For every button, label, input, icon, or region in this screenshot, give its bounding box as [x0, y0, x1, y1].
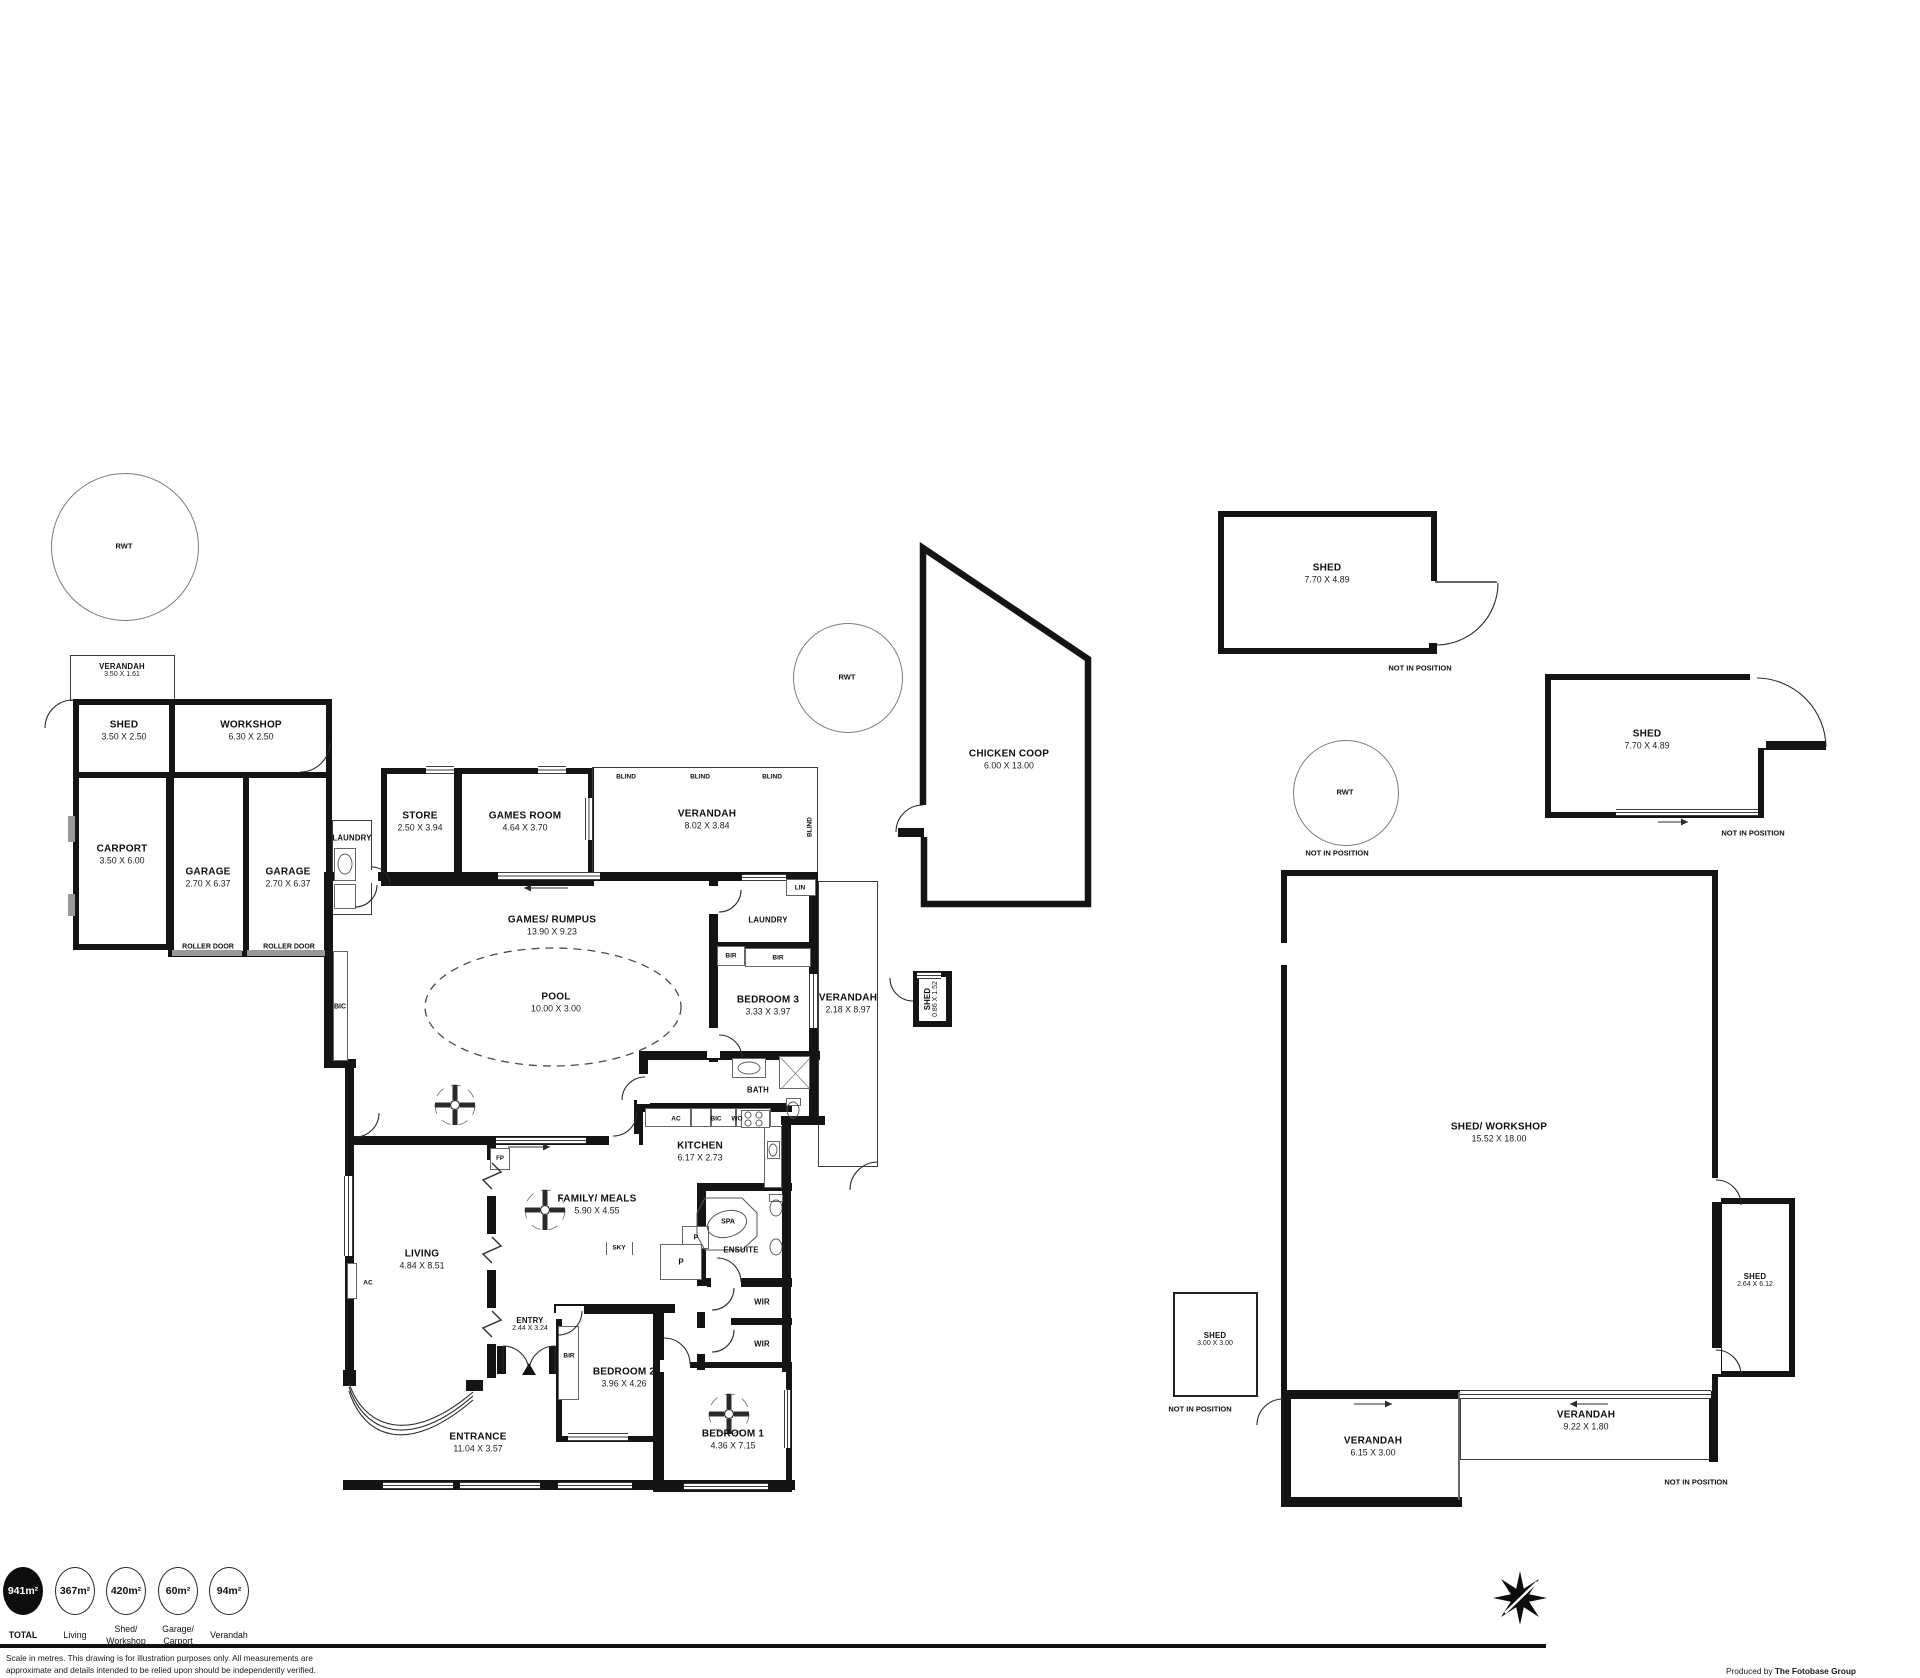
- workshop-name: WORKSHOP: [220, 720, 282, 732]
- wall-segment: [898, 828, 924, 837]
- arrow-head-icon: [1385, 1401, 1392, 1408]
- shed-small-name: SHED: [923, 981, 932, 1017]
- verandah-s2-label: VERANDAH9.22 X 1.80: [1557, 1410, 1615, 1433]
- shed-east-label: SHED2.64 X 6.12: [1737, 1272, 1773, 1290]
- games-rumpus-name: GAMES/ RUMPUS: [508, 915, 596, 927]
- wir-1-label: WIR: [754, 1297, 770, 1306]
- pool-dimensions: 10.00 X 3.00: [531, 1004, 581, 1015]
- legend-area-living: 367m²: [55, 1567, 95, 1615]
- annotation-lin: LIN: [795, 885, 805, 892]
- living-name: LIVING: [400, 1249, 445, 1261]
- fixture: [786, 1098, 801, 1106]
- garage-2-outline: [243, 772, 332, 957]
- annotation-blind: BLIND: [616, 774, 636, 781]
- wall-opening: [556, 1306, 584, 1319]
- verandah-north-label: VERANDAH8.02 X 3.84: [678, 809, 736, 832]
- annotation-wo: WO: [731, 1116, 742, 1123]
- entry-marker-icon: [522, 1363, 536, 1375]
- games-rumpus-dimensions: 13.90 X 9.23: [508, 927, 596, 938]
- legend-area-garage: 60m²: [158, 1567, 198, 1615]
- annotation-roller-door: ROLLER DOOR: [263, 944, 315, 951]
- fixture: [741, 1110, 770, 1128]
- bedroom-2-label: BEDROOM 23.96 X 4.26: [593, 1367, 655, 1390]
- annotation-not-in-position: NOT IN POSITION: [1664, 1478, 1727, 1487]
- fotobase-logo-slash: [1505, 1582, 1537, 1613]
- wall-segment: [1281, 1390, 1465, 1399]
- footer-produced-by: Produced by The Fotobase Group: [1540, 1666, 1856, 1676]
- fixture: [334, 848, 356, 881]
- verandah-s1-label: VERANDAH6.15 X 3.00: [1344, 1436, 1402, 1459]
- wall-opening: [711, 1274, 741, 1287]
- shed-nw-dimensions: 3.50 X 2.50: [102, 732, 147, 743]
- window: [568, 1433, 628, 1441]
- verandah-s1-name: VERANDAH: [1344, 1436, 1402, 1448]
- entry-label: ENTRY2.44 X 3.24: [512, 1316, 548, 1334]
- verandah-nw-dimensions: 3.50 X 1.61: [99, 671, 145, 679]
- annotation-bir: BIR: [563, 1353, 574, 1360]
- door-swing-arc: [503, 1346, 529, 1372]
- door-swing-arc: [1757, 678, 1826, 747]
- roller-door-strip: [68, 894, 75, 916]
- bedroom-2-name: BEDROOM 2: [593, 1367, 655, 1379]
- shed-small-label: SHED0.86 X 1.52: [923, 981, 941, 1017]
- footer-disclaimer: Scale in metres. This drawing is for ill…: [6, 1652, 316, 1677]
- wall-opening: [483, 1308, 501, 1344]
- verandah-nw-label: VERANDAH3.50 X 1.61: [99, 662, 145, 680]
- legend-label: Garage/: [162, 1624, 194, 1634]
- wall-opening: [1424, 581, 1437, 643]
- shed-nw-label: SHED3.50 X 2.50: [102, 720, 147, 743]
- legend-label: Verandah: [210, 1630, 248, 1640]
- rainwater-tank-label: RWT: [1337, 788, 1354, 797]
- fixture: [347, 1263, 357, 1299]
- wall-segment: [466, 1380, 483, 1391]
- wall-segment: [1760, 741, 1826, 750]
- window: [558, 1482, 632, 1489]
- annotation-not-in-position: NOT IN POSITION: [1721, 829, 1784, 838]
- annotation-bic: BIC: [710, 1116, 721, 1123]
- annotation-spa: SPA: [721, 1219, 735, 1226]
- annotation-bir: BIR: [772, 955, 783, 962]
- garage-1-dimensions: 2.70 X 6.37: [185, 879, 230, 890]
- pool-label: POOL10.00 X 3.00: [531, 992, 581, 1015]
- wall-segment: [1281, 1392, 1291, 1504]
- annotation-roller-door: ROLLER DOOR: [182, 944, 234, 951]
- door-swing-arc: [712, 1288, 734, 1310]
- bedroom-1-label: BEDROOM 14.36 X 7.15: [702, 1429, 764, 1452]
- carport-label: CARPORT3.50 X 6.00: [97, 844, 148, 867]
- hairline: [632, 1242, 633, 1255]
- entry-name: ENTRY: [512, 1316, 548, 1325]
- entrance-name: ENTRANCE: [449, 1432, 506, 1444]
- kitchen-name: KITCHEN: [677, 1141, 723, 1153]
- living-label: LIVING4.84 X 8.51: [400, 1249, 445, 1272]
- door-swing-arc: [712, 1330, 734, 1352]
- annotation-not-in-position: NOT IN POSITION: [1305, 849, 1368, 858]
- verandah-north-dimensions: 8.02 X 3.84: [678, 821, 736, 832]
- shed-workshop-dimensions: 15.52 X 18.00: [1451, 1134, 1547, 1145]
- verandah-east-label: VERANDAH2.18 X 8.97: [819, 993, 877, 1016]
- entrance-label: ENTRANCE11.04 X 3.57: [449, 1432, 506, 1455]
- shed-small-dimensions: 0.86 X 1.52: [932, 981, 940, 1017]
- workshop-label: WORKSHOP6.30 X 2.50: [220, 720, 282, 743]
- arrow-head-icon: [1681, 819, 1688, 826]
- wall-opening: [483, 1234, 501, 1270]
- wir-2-label: WIR: [754, 1339, 770, 1348]
- kitchen-label: KITCHEN6.17 X 2.73: [677, 1141, 723, 1164]
- shed-ne-1-label: SHED7.70 X 4.89: [1305, 563, 1350, 586]
- shed-sw-dimensions: 3.00 X 3.00: [1197, 1340, 1233, 1348]
- roller-door-strip: [68, 816, 75, 842]
- footer-line-2: approximate and details intended to be r…: [6, 1664, 316, 1676]
- shed-ne-1-dimensions: 7.70 X 4.89: [1305, 575, 1350, 586]
- annotation-blind: BLIND: [807, 817, 814, 837]
- fixture: [767, 1141, 780, 1159]
- family-meals-label: FAMILY/ MEALS5.90 X 4.55: [558, 1194, 637, 1217]
- fixture: [334, 884, 356, 909]
- window: [344, 1176, 353, 1256]
- window: [538, 766, 566, 774]
- chicken-coop-label: CHICKEN COOP6.00 X 13.00: [969, 749, 1049, 772]
- wall-opening: [695, 1328, 707, 1354]
- carport-name: CARPORT: [97, 844, 148, 856]
- window: [498, 872, 600, 880]
- games-room-dimensions: 4.64 X 3.70: [489, 823, 562, 834]
- wall-opening: [707, 886, 720, 914]
- carport-dimensions: 3.50 X 6.00: [97, 856, 148, 867]
- door-swing-arc: [1257, 1399, 1283, 1425]
- wall-opening: [1708, 1348, 1721, 1374]
- wall-segment: [782, 1116, 791, 1372]
- annotation-fp: FP: [496, 1156, 504, 1162]
- legend-label: Shed/: [115, 1624, 138, 1634]
- wall-opening: [1750, 670, 1766, 748]
- annotation-not-in-position: NOT IN POSITION: [1388, 664, 1451, 673]
- wall-opening: [1708, 1178, 1721, 1202]
- wall-opening: [660, 1360, 690, 1372]
- bedroom-3-label: BEDROOM 33.33 X 3.97: [737, 995, 799, 1018]
- ceiling-fan-icon: [435, 1085, 475, 1125]
- verandah-s1-dimensions: 6.15 X 3.00: [1344, 1448, 1402, 1459]
- games-rumpus-label: GAMES/ RUMPUS13.90 X 9.23: [508, 915, 596, 938]
- wall-opening: [637, 1074, 650, 1104]
- wall-segment: [343, 1370, 356, 1386]
- legend-label: Living: [64, 1630, 87, 1640]
- window: [784, 1390, 791, 1448]
- chicken-coop-name: CHICKEN COOP: [969, 749, 1049, 761]
- fixture: [558, 1326, 579, 1400]
- garage-2-name: GARAGE: [265, 867, 310, 879]
- laundry-main-name: LAUNDRY: [748, 915, 787, 924]
- door-swing-arc: [355, 1113, 379, 1137]
- store-name: STORE: [398, 811, 443, 823]
- hairline: [1435, 581, 1497, 583]
- window: [684, 1483, 768, 1490]
- door-swing-arc: [1437, 583, 1498, 645]
- annotation-blind: BLIND: [690, 774, 710, 781]
- annotation-p: P: [694, 1235, 699, 1242]
- legend-area-total: 941m²: [3, 1567, 43, 1615]
- chicken-coop-outline: [923, 548, 1088, 904]
- door-swing-arc: [719, 890, 741, 912]
- fixture: [779, 1056, 810, 1089]
- shed-ne-1-name: SHED: [1305, 563, 1350, 575]
- window: [460, 1482, 540, 1489]
- shed-ne-2-dimensions: 7.70 X 4.89: [1625, 741, 1670, 752]
- hairline: [690, 1108, 692, 1127]
- wir-2-name: WIR: [754, 1339, 770, 1348]
- verandah-nw-name: VERANDAH: [99, 662, 145, 671]
- plumbing-fixture: [770, 1200, 782, 1216]
- produced-by-company: The Fotobase Group: [1775, 1666, 1856, 1676]
- annotation-bic: BIC: [334, 1004, 346, 1011]
- laundry-main-label: LAUNDRY: [748, 915, 787, 924]
- window: [1616, 809, 1758, 816]
- verandah-north-name: VERANDAH: [678, 809, 736, 821]
- door-swing-arc: [890, 978, 913, 1001]
- window: [809, 974, 818, 1028]
- roller-door-strip: [247, 950, 325, 956]
- laundry-2-name: LAUNDRY: [332, 833, 371, 842]
- window: [1460, 1390, 1711, 1399]
- wall-segment: [1709, 1392, 1718, 1462]
- window: [426, 766, 454, 774]
- shed-east-name: SHED: [1737, 1272, 1773, 1281]
- kitchen-dimensions: 6.17 X 2.73: [677, 1153, 723, 1164]
- garage-1-label: GARAGE2.70 X 6.37: [185, 867, 230, 890]
- wall-segment: [497, 1346, 506, 1374]
- wall-segment: [549, 1346, 558, 1374]
- shed-sw-label: SHED3.00 X 3.00: [1197, 1331, 1233, 1349]
- verandah-east-dimensions: 2.18 X 8.97: [819, 1005, 877, 1016]
- store-label: STORE2.50 X 3.94: [398, 811, 443, 834]
- roller-door-strip: [172, 950, 242, 956]
- shed-nw-name: SHED: [102, 720, 147, 732]
- wall-opening: [695, 1286, 707, 1312]
- floor-plan: VERANDAH3.50 X 1.61SHED3.50 X 2.50WORKSH…: [0, 0, 1920, 1678]
- hairline: [606, 1242, 607, 1255]
- fixture: [732, 1058, 766, 1078]
- pool-name: POOL: [531, 992, 581, 1004]
- living-dimensions: 4.84 X 8.51: [400, 1261, 445, 1272]
- rainwater-tank-label: RWT: [839, 673, 856, 682]
- wall-segment: [324, 872, 333, 1068]
- window: [496, 1137, 586, 1144]
- shed-ne-2-label: SHED7.70 X 4.89: [1625, 729, 1670, 752]
- verandah-s2-name: VERANDAH: [1557, 1410, 1615, 1422]
- shed-east-dimensions: 2.64 X 6.12: [1737, 1281, 1773, 1289]
- bay-window-curve: [349, 1387, 473, 1430]
- wir-1-name: WIR: [754, 1297, 770, 1306]
- wall-segment: [731, 1318, 792, 1325]
- bay-window-curve: [349, 1391, 473, 1435]
- bedroom-2-dimensions: 3.96 X 4.26: [593, 1379, 655, 1390]
- store-dimensions: 2.50 X 3.94: [398, 823, 443, 834]
- ensuite-label: ENSUITE: [723, 1245, 758, 1254]
- annotation-sky: SKY: [612, 1245, 625, 1252]
- garage-1-name: GARAGE: [185, 867, 230, 879]
- window: [383, 1482, 453, 1489]
- entry-dimensions: 2.44 X 3.24: [512, 1325, 548, 1333]
- legend-area-verandah: 94m²: [209, 1567, 249, 1615]
- annotation-bir: BIR: [725, 953, 736, 960]
- verandah-s2-dimensions: 9.22 X 1.80: [1557, 1422, 1615, 1433]
- verandah-east-name: VERANDAH: [819, 993, 877, 1005]
- wall-opening: [707, 1028, 720, 1058]
- garage-2-label: GARAGE2.70 X 6.37: [265, 867, 310, 890]
- produced-by-prefix: Produced by: [1726, 1666, 1775, 1676]
- annotation-blind: BLIND: [762, 774, 782, 781]
- hairline: [1458, 1392, 1460, 1500]
- bedroom-1-name: BEDROOM 1: [702, 1429, 764, 1441]
- window: [917, 972, 941, 979]
- laundry-2-label: LAUNDRY: [332, 833, 371, 842]
- family-meals-dimensions: 5.90 X 4.55: [558, 1206, 637, 1217]
- games-room-label: GAMES ROOM4.64 X 3.70: [489, 811, 562, 834]
- verandah-east-outline: [818, 881, 878, 1167]
- games-room-name: GAMES ROOM: [489, 811, 562, 823]
- bedroom-1-outline: [653, 1362, 792, 1492]
- shed-workshop-name: SHED/ WORKSHOP: [1451, 1122, 1547, 1134]
- ensuite-name: ENSUITE: [723, 1245, 758, 1254]
- garage-2-dimensions: 2.70 X 6.37: [265, 879, 310, 890]
- shed-workshop-label: SHED/ WORKSHOP15.52 X 18.00: [1451, 1122, 1547, 1145]
- door-swing-arc: [45, 700, 73, 728]
- annotation-ac: AC: [671, 1116, 680, 1123]
- bay-window-curve: [349, 1383, 473, 1425]
- workshop-dimensions: 6.30 X 2.50: [220, 732, 282, 743]
- wall-segment: [1281, 1497, 1462, 1507]
- shed-sw-name: SHED: [1197, 1331, 1233, 1340]
- chicken-coop-dimensions: 6.00 X 13.00: [969, 761, 1049, 772]
- annotation-p: P: [678, 1258, 683, 1267]
- bedroom-3-dimensions: 3.33 X 3.97: [737, 1007, 799, 1018]
- window: [742, 874, 786, 881]
- fotobase-logo-icon: [1493, 1571, 1547, 1625]
- garage-1-outline: [168, 772, 249, 957]
- annotation-ac: AC: [363, 1280, 372, 1287]
- family-meals-name: FAMILY/ MEALS: [558, 1194, 637, 1206]
- annotation-not-in-position: NOT IN POSITION: [1168, 1405, 1231, 1414]
- bedroom-3-name: BEDROOM 3: [737, 995, 799, 1007]
- rainwater-tank-label: RWT: [116, 542, 133, 551]
- footer-line-1: Scale in metres. This drawing is for ill…: [6, 1652, 316, 1664]
- legend-area-shed: 420m²: [106, 1567, 146, 1615]
- fixture: [769, 1194, 783, 1202]
- entrance-dimensions: 11.04 X 3.57: [449, 1444, 506, 1455]
- bedroom-1-dimensions: 4.36 X 7.15: [702, 1441, 764, 1452]
- legend-label: TOTAL: [9, 1630, 38, 1640]
- shed-ne-2-name: SHED: [1625, 729, 1670, 741]
- bath-name: BATH: [747, 1085, 769, 1094]
- plumbing-fixture: [770, 1239, 782, 1255]
- wall-opening: [609, 1134, 639, 1147]
- bath-label: BATH: [747, 1085, 769, 1094]
- window: [585, 798, 593, 840]
- wall-segment: [653, 1308, 664, 1490]
- wall-opening: [1277, 943, 1291, 965]
- footer-divider: [0, 1644, 1546, 1648]
